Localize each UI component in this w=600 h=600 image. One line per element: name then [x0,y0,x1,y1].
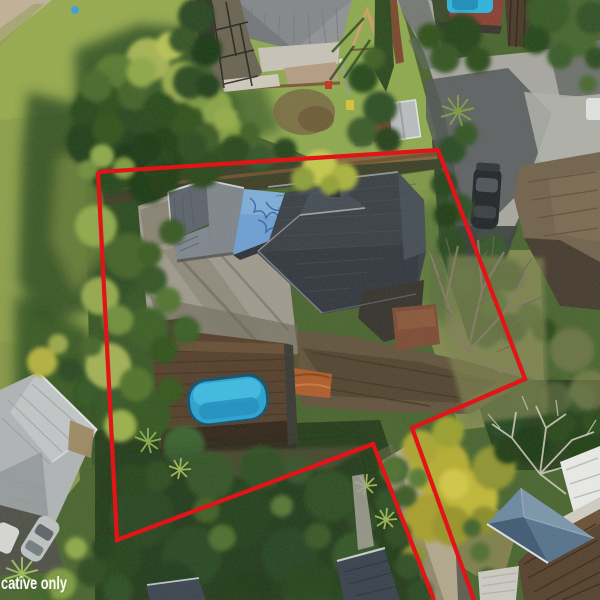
svg-text:cative only: cative only [1,573,67,593]
